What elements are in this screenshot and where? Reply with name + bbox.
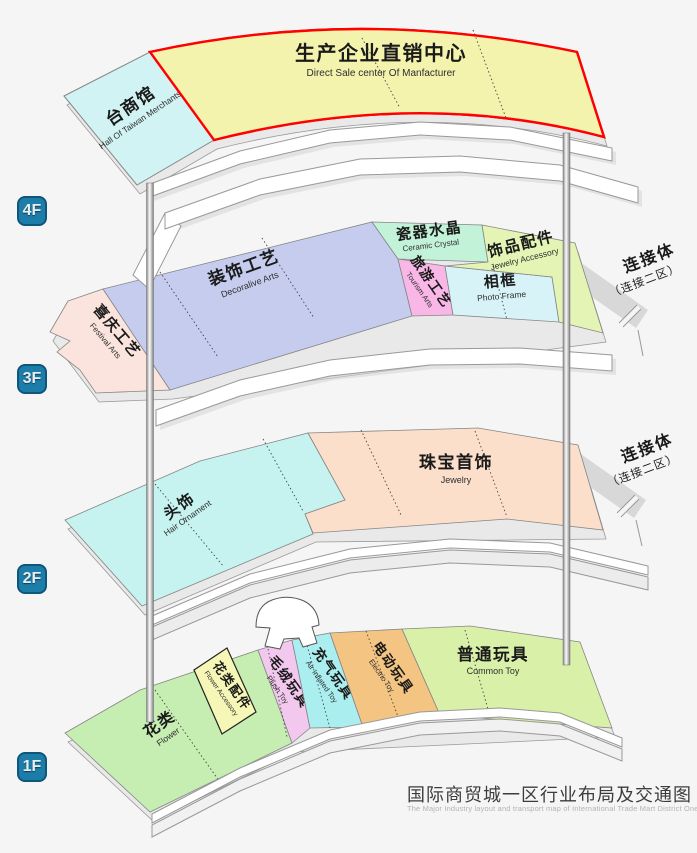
section-label-zh: 相框 <box>483 271 517 292</box>
floor-badge-3f: 3F <box>17 364 47 394</box>
map-svg: 台商馆Hall Of Taiwan Merchants生产企业直销中心Direc… <box>0 0 697 853</box>
section-label: 普通玩具Common Toy <box>457 644 529 676</box>
floor-badge-4f: 4F <box>17 196 47 226</box>
section-label-en: Common Toy <box>467 666 520 676</box>
connector-tail <box>636 520 642 546</box>
connector-tail <box>638 330 643 356</box>
section-jewelry: 珠宝首饰Jewelry <box>305 428 603 533</box>
section-label-zh: 生产企业直销中心 <box>295 41 467 65</box>
floor-badge-1f: 1F <box>17 752 47 782</box>
floor-2f: 头饰Hair Ornament珠宝首饰Jewelry <box>65 428 603 606</box>
section-label-zh: 珠宝首饰 <box>419 452 493 472</box>
floor-badge-2f: 2F <box>17 564 47 594</box>
floor-map: 台商馆Hall Of Taiwan Merchants生产企业直销中心Direc… <box>0 0 697 853</box>
section-label-en: Jewelry <box>441 475 472 485</box>
support-pole-left <box>147 183 154 722</box>
section-flower: 花类Flower <box>65 650 292 812</box>
support-pole-right <box>563 133 570 665</box>
section-label-zh: 普通玩具 <box>457 644 529 664</box>
map-subtitle: The Major Industry layout and transport … <box>407 804 677 813</box>
